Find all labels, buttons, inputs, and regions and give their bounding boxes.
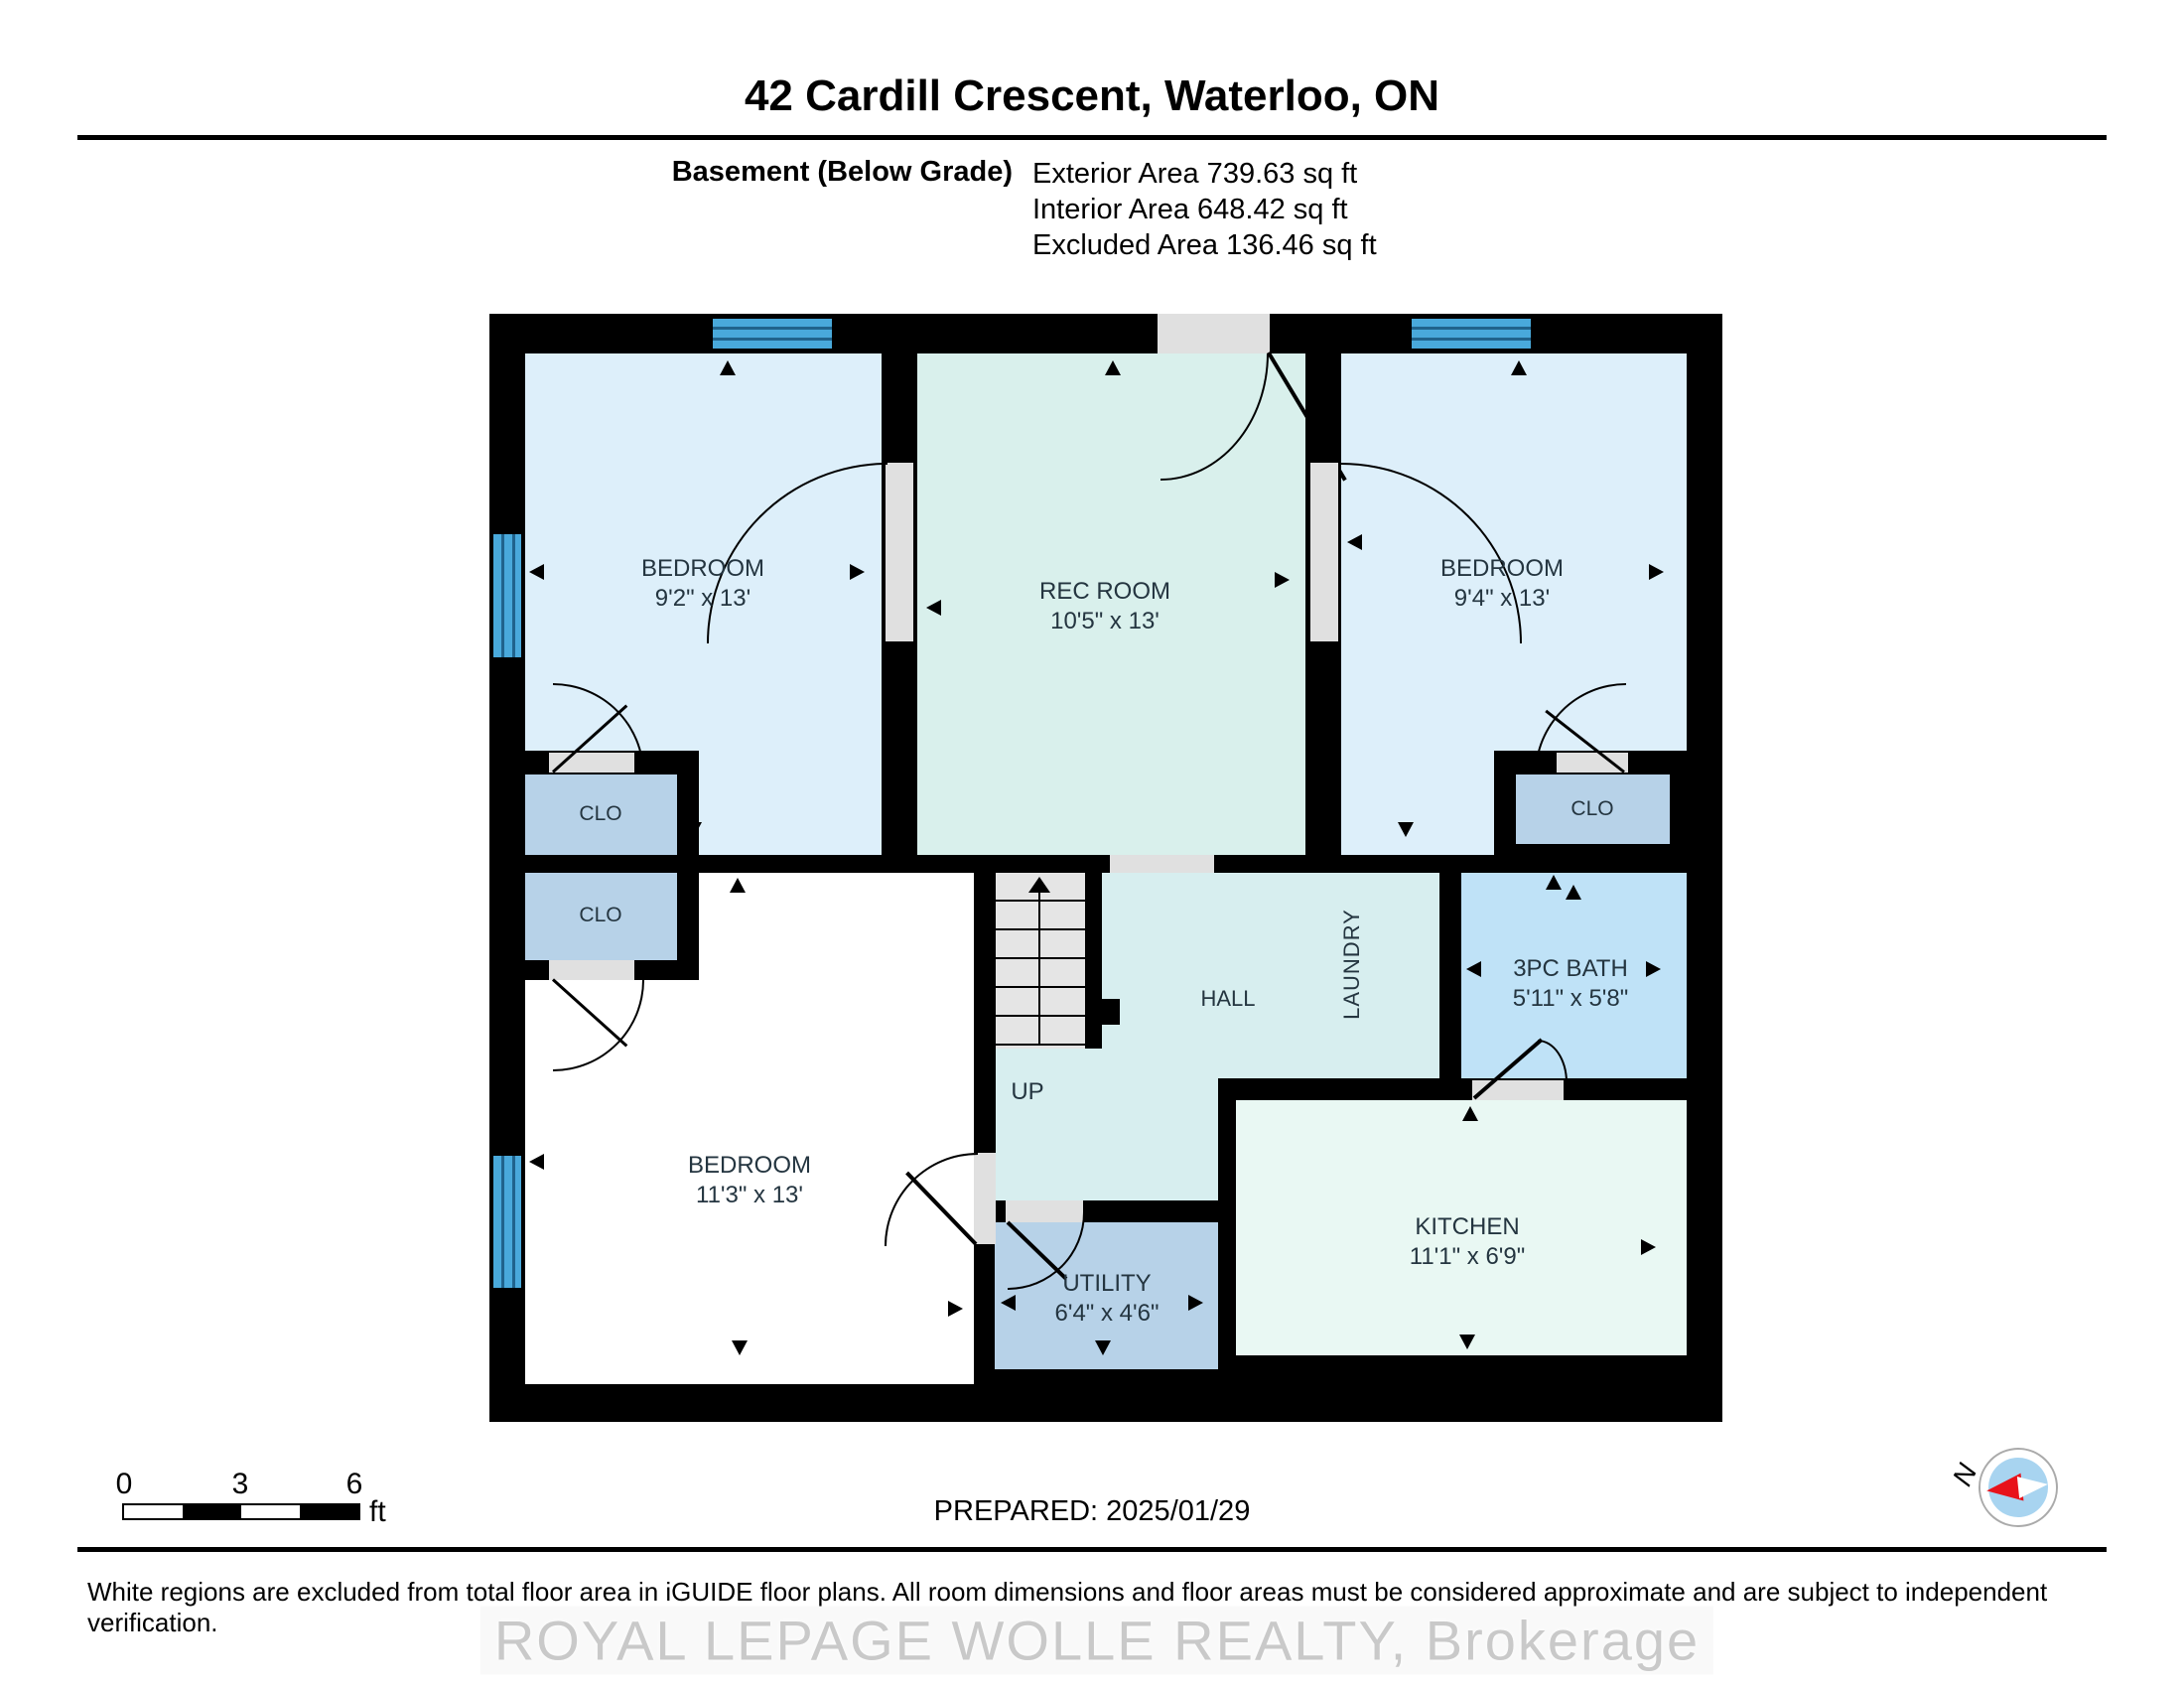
dimension-arrow	[948, 1301, 963, 1317]
room-label-hall: HALL	[1200, 984, 1255, 1014]
kitchen-wall-stub	[1218, 1078, 1236, 1222]
dimension-arrow	[1188, 1295, 1203, 1311]
room-label-utility: UTILITY 6'4" x 4'6"	[1055, 1269, 1160, 1329]
window-icon	[1412, 319, 1531, 349]
door-opening	[886, 463, 913, 641]
window-icon	[493, 1156, 521, 1288]
dimension-arrow	[1649, 564, 1664, 580]
dimension-arrow	[1275, 572, 1290, 588]
room-label-bedroom-bottom-left: BEDROOM 11'3" x 13'	[688, 1151, 811, 1210]
hall-doorway-opening	[1110, 855, 1214, 873]
dimension-arrow	[1095, 1340, 1111, 1355]
door-opening	[1310, 463, 1338, 641]
window-icon	[713, 319, 832, 349]
area-summary: Exterior Area 739.63 sq ft Interior Area…	[1032, 156, 1377, 263]
room-label-bath: 3PC BATH 5'11" x 5'8"	[1513, 954, 1629, 1014]
compass-icon: N	[1975, 1444, 2062, 1531]
footer-divider	[77, 1547, 2107, 1552]
room-label-laundry: LAUNDRY	[1337, 909, 1367, 1020]
dimension-arrow	[850, 564, 865, 580]
dimension-arrow	[1646, 961, 1661, 977]
dimension-arrow	[1641, 1239, 1656, 1255]
dimension-arrow	[1001, 1295, 1016, 1311]
dimension-arrow	[926, 600, 941, 616]
dimension-arrow	[529, 1154, 544, 1170]
brokerage-watermark: ROYAL LEPAGE WOLLE REALTY, Brokerage	[480, 1607, 1713, 1675]
exterior-door-opening	[1158, 314, 1270, 353]
excluded-area: Excluded Area 136.46 sq ft	[1032, 227, 1377, 263]
dimension-arrow	[1105, 360, 1121, 375]
dimension-arrow	[720, 360, 736, 375]
interior-area: Interior Area 648.42 sq ft	[1032, 192, 1377, 227]
exterior-area: Exterior Area 739.63 sq ft	[1032, 156, 1377, 192]
room-label-closet: CLO	[579, 799, 621, 829]
dimension-arrow	[1546, 875, 1562, 890]
floor-plan-page: 42 Cardill Crescent, Waterloo, ON Baseme…	[0, 0, 2184, 1688]
window-icon	[493, 534, 521, 657]
dimension-arrow	[686, 822, 702, 837]
page-title: 42 Cardill Crescent, Waterloo, ON	[0, 71, 2184, 121]
dimension-arrow	[732, 1340, 748, 1355]
dimension-arrow	[1398, 822, 1414, 837]
room-hall-below-stairs	[996, 1049, 1102, 1200]
stairs-up-label: UP	[1011, 1077, 1043, 1107]
dimension-arrow	[1459, 1335, 1475, 1349]
floor-label: Basement (Below Grade)	[606, 156, 1013, 189]
room-label-bedroom-top-left: BEDROOM 9'2" x 13'	[641, 554, 764, 614]
closet-door-opening	[549, 960, 634, 980]
room-label-bedroom-top-right: BEDROOM 9'4" x 13'	[1440, 554, 1564, 614]
dimension-arrow	[529, 564, 544, 580]
floor-plan: BEDROOM 9'2" x 13' REC ROOM 10'5" x 13' …	[489, 314, 1722, 1422]
dimension-arrow	[1566, 885, 1581, 900]
prepared-date: PREPARED: 2025/01/29	[0, 1495, 2184, 1528]
room-hall-lower	[1102, 1078, 1218, 1200]
dimension-arrow	[1511, 360, 1527, 375]
room-label-closet: CLO	[1570, 794, 1613, 824]
room-label-kitchen: KITCHEN 11'1" x 6'9"	[1410, 1212, 1526, 1272]
dimension-arrow	[1466, 961, 1481, 977]
stairs	[996, 873, 1085, 1049]
room-label-closet: CLO	[579, 901, 621, 930]
dimension-arrow	[730, 878, 746, 893]
stair-up-arrow-icon	[1028, 877, 1050, 893]
stair-direction-line	[1038, 887, 1040, 1044]
dimension-arrow	[1462, 1106, 1478, 1121]
room-label-rec-room: REC ROOM 10'5" x 13'	[1039, 577, 1170, 636]
dimension-arrow	[1347, 534, 1362, 550]
room-hall	[1102, 873, 1439, 1078]
header-divider	[77, 135, 2107, 140]
compass-circle	[1975, 1444, 2062, 1531]
compass-white-needle	[2017, 1474, 2049, 1498]
stair-wall-stub	[1102, 999, 1120, 1025]
